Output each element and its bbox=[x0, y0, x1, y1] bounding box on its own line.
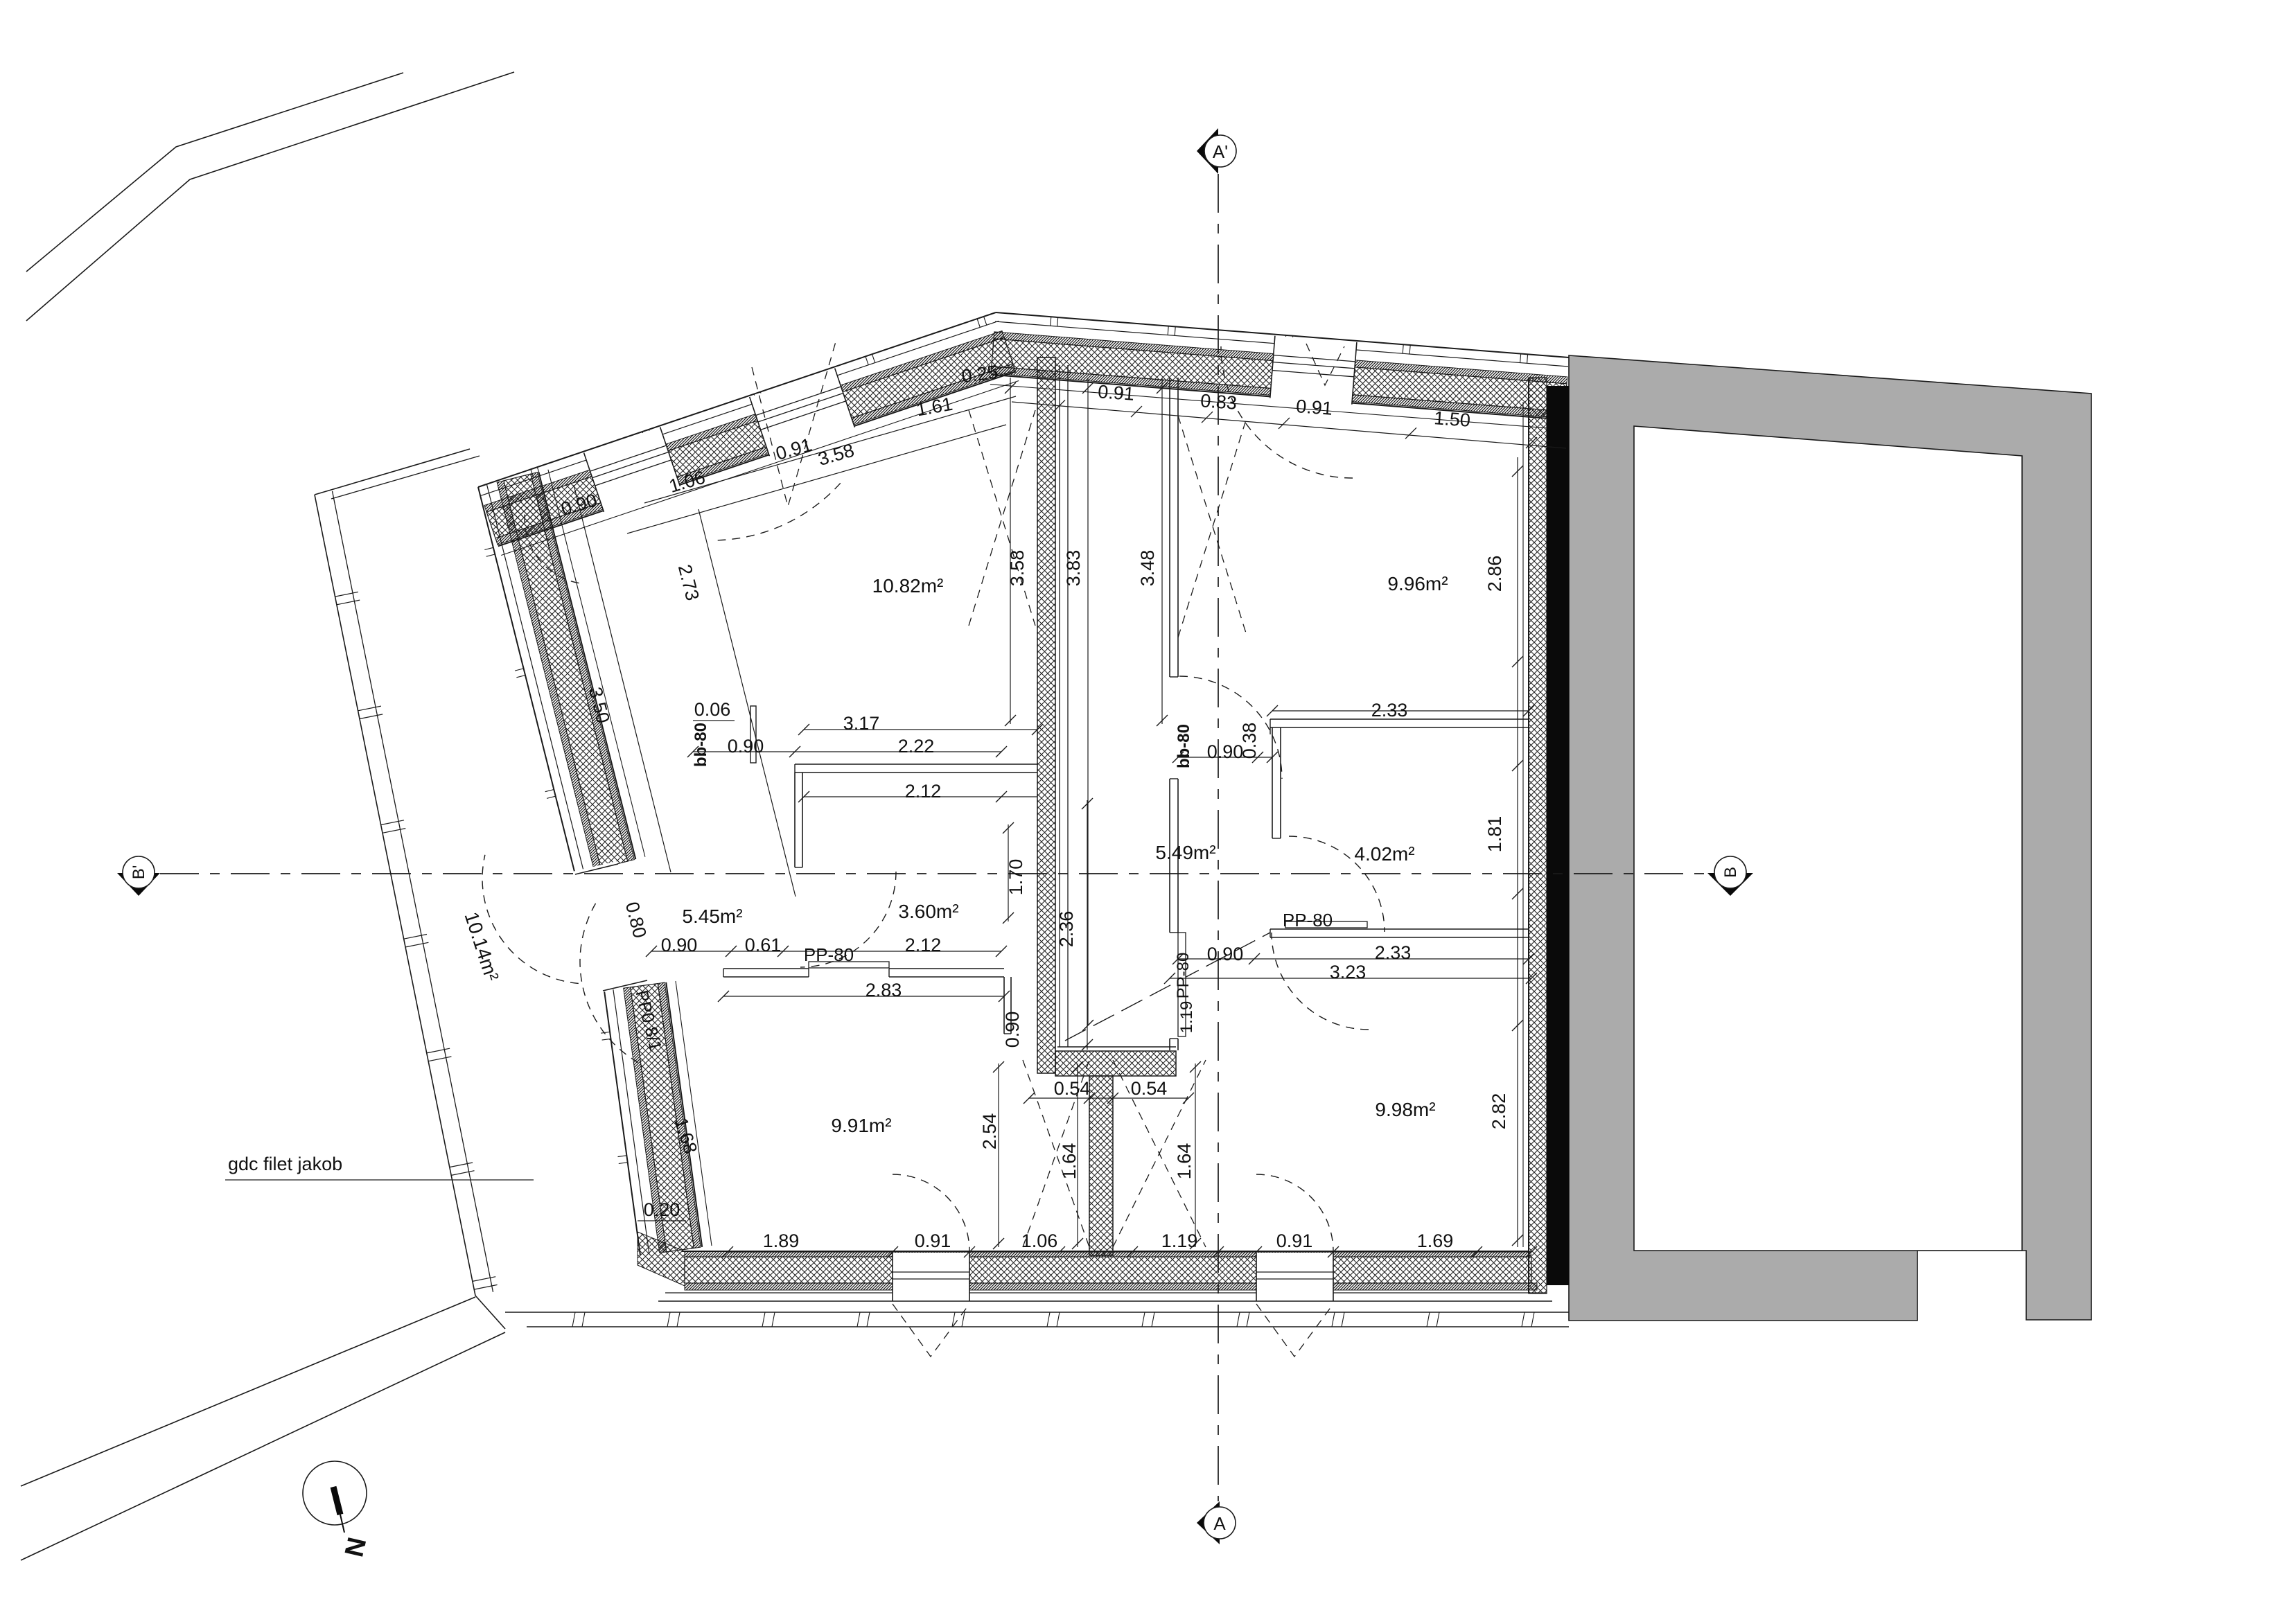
svg-text:0.90: 0.90 bbox=[1207, 741, 1244, 762]
svg-text:2.12: 2.12 bbox=[905, 781, 942, 802]
svg-text:9.91m²: 9.91m² bbox=[831, 1115, 891, 1136]
svg-text:0.90: 0.90 bbox=[728, 736, 764, 757]
svg-text:9.96m²: 9.96m² bbox=[1387, 573, 1448, 594]
svg-text:1.50: 1.50 bbox=[1433, 407, 1471, 431]
svg-text:A': A' bbox=[1213, 141, 1228, 162]
svg-text:0.91: 0.91 bbox=[1097, 381, 1135, 405]
svg-text:2.33: 2.33 bbox=[1371, 700, 1408, 721]
svg-text:0.54: 0.54 bbox=[1054, 1078, 1091, 1099]
svg-text:0.06: 0.06 bbox=[694, 699, 731, 720]
svg-text:2.12: 2.12 bbox=[905, 935, 942, 955]
svg-text:PP-80: PP-80 bbox=[1283, 910, 1333, 930]
svg-text:gdc filet jakob: gdc filet jakob bbox=[228, 1154, 342, 1174]
svg-text:1.64: 1.64 bbox=[1059, 1143, 1080, 1180]
svg-text:0.91: 0.91 bbox=[915, 1230, 951, 1251]
svg-text:PP-80: PP-80 bbox=[804, 944, 854, 965]
svg-text:1.70: 1.70 bbox=[1005, 859, 1026, 896]
svg-text:3.23: 3.23 bbox=[1330, 962, 1367, 982]
svg-text:0.90: 0.90 bbox=[1002, 1012, 1023, 1048]
svg-text:10.82m²: 10.82m² bbox=[872, 575, 944, 597]
svg-text:3.58: 3.58 bbox=[1007, 550, 1028, 587]
svg-text:bb-80: bb-80 bbox=[1175, 724, 1193, 768]
svg-text:A: A bbox=[1213, 1513, 1226, 1534]
svg-text:0.83: 0.83 bbox=[1200, 390, 1238, 414]
svg-text:0.54: 0.54 bbox=[1131, 1078, 1168, 1099]
svg-text:5.45m²: 5.45m² bbox=[682, 906, 742, 927]
svg-text:1.69: 1.69 bbox=[1417, 1230, 1454, 1251]
svg-text:1.19: 1.19 bbox=[1161, 1230, 1198, 1251]
svg-text:2.86: 2.86 bbox=[1484, 556, 1505, 592]
svg-text:1.19: 1.19 bbox=[1177, 1001, 1196, 1034]
svg-text:0.38: 0.38 bbox=[1239, 723, 1260, 759]
svg-text:bb-80: bb-80 bbox=[692, 723, 710, 767]
svg-text:9.98m²: 9.98m² bbox=[1375, 1099, 1435, 1120]
svg-text:2.33: 2.33 bbox=[1375, 942, 1412, 963]
svg-text:B': B' bbox=[130, 865, 148, 880]
svg-text:0.91: 0.91 bbox=[1295, 396, 1333, 419]
svg-text:1.64: 1.64 bbox=[1174, 1143, 1195, 1180]
svg-text:4.02m²: 4.02m² bbox=[1354, 843, 1414, 865]
svg-text:3.83: 3.83 bbox=[1063, 550, 1084, 587]
svg-text:3.17: 3.17 bbox=[843, 713, 880, 734]
svg-text:5.49m²: 5.49m² bbox=[1155, 842, 1215, 863]
svg-text:B: B bbox=[1721, 867, 1740, 878]
svg-text:PP-80: PP-80 bbox=[1174, 953, 1193, 999]
svg-text:1.06: 1.06 bbox=[1021, 1230, 1058, 1251]
svg-text:2.36: 2.36 bbox=[1056, 911, 1077, 948]
svg-text:3.60m²: 3.60m² bbox=[898, 901, 958, 922]
svg-text:0.91: 0.91 bbox=[1276, 1230, 1313, 1251]
svg-text:2.83: 2.83 bbox=[866, 980, 902, 1000]
svg-text:3.48: 3.48 bbox=[1137, 550, 1158, 587]
svg-text:1.89: 1.89 bbox=[763, 1230, 800, 1251]
svg-text:2.54: 2.54 bbox=[979, 1113, 1000, 1150]
svg-text:2.22: 2.22 bbox=[898, 736, 935, 757]
svg-text:0.90: 0.90 bbox=[661, 935, 698, 955]
svg-text:2.82: 2.82 bbox=[1488, 1093, 1509, 1130]
svg-text:0.20: 0.20 bbox=[644, 1199, 680, 1220]
svg-text:0.61: 0.61 bbox=[745, 935, 782, 955]
svg-text:1.81: 1.81 bbox=[1484, 816, 1505, 853]
svg-text:0.90: 0.90 bbox=[1207, 944, 1244, 964]
